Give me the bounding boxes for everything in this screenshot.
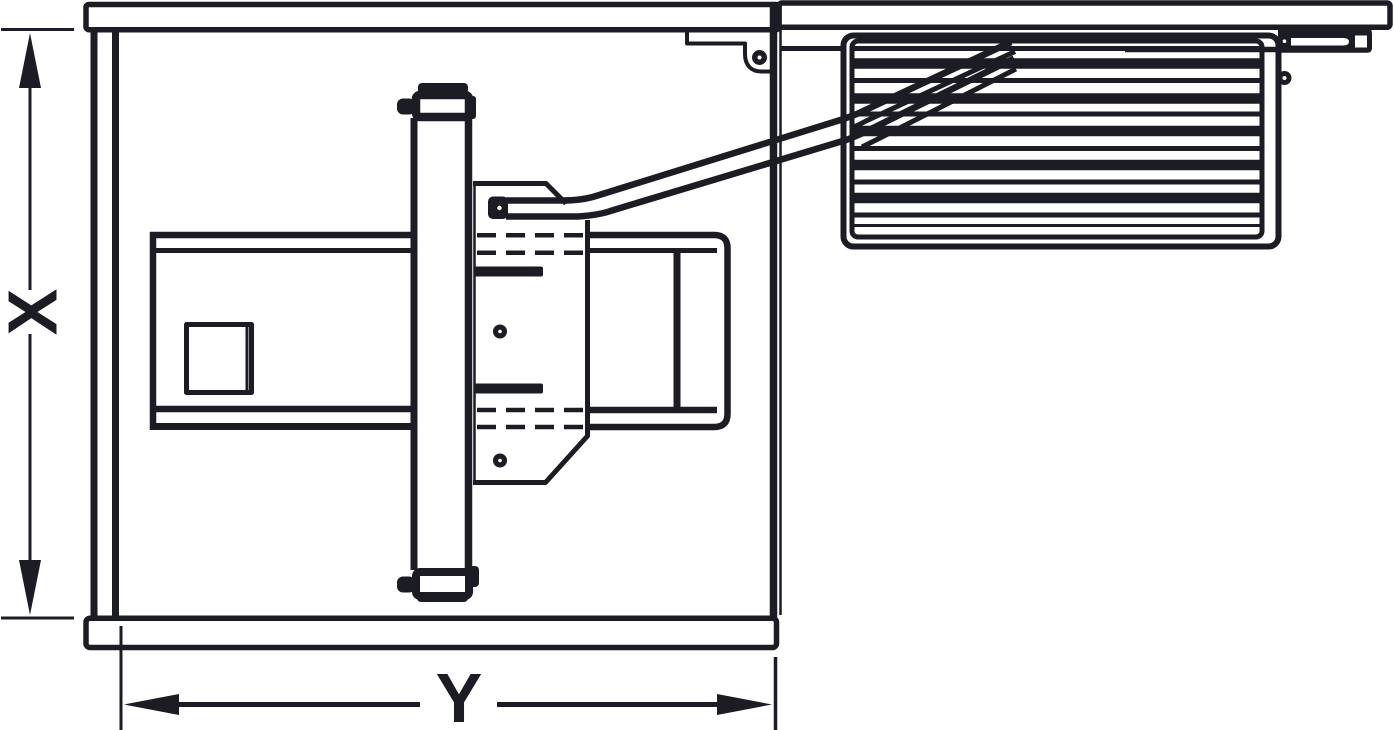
- svg-text:X: X: [0, 288, 72, 335]
- svg-text:Y: Y: [436, 659, 483, 730]
